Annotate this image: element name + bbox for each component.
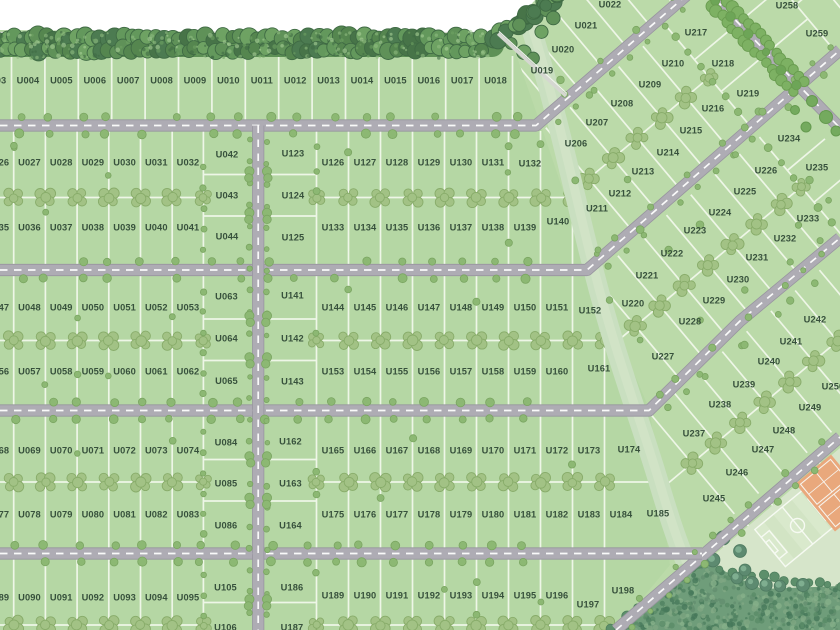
- svg-text:U159: U159: [514, 366, 537, 376]
- svg-text:U214: U214: [657, 147, 680, 157]
- svg-text:U245: U245: [703, 493, 726, 503]
- svg-text:U038: U038: [82, 222, 105, 232]
- svg-text:U132: U132: [519, 158, 542, 168]
- svg-text:U127: U127: [354, 157, 377, 167]
- svg-text:U231: U231: [746, 252, 769, 262]
- svg-text:U089: U089: [0, 592, 9, 602]
- svg-text:U138: U138: [482, 222, 505, 232]
- svg-text:U135: U135: [386, 222, 409, 232]
- svg-text:U217: U217: [685, 27, 708, 37]
- svg-text:U178: U178: [418, 509, 441, 519]
- svg-text:U006: U006: [83, 75, 106, 85]
- svg-text:U126: U126: [322, 157, 345, 167]
- svg-text:U140: U140: [547, 216, 570, 226]
- svg-text:U250: U250: [822, 381, 840, 391]
- svg-text:U213: U213: [632, 166, 655, 176]
- svg-text:U016: U016: [417, 75, 440, 85]
- svg-text:U216: U216: [702, 103, 725, 113]
- svg-text:U240: U240: [758, 356, 781, 366]
- svg-text:U242: U242: [804, 314, 827, 324]
- svg-text:U070: U070: [50, 445, 73, 455]
- svg-text:U197: U197: [577, 599, 600, 609]
- svg-text:U238: U238: [709, 399, 732, 409]
- svg-text:U072: U072: [113, 445, 136, 455]
- svg-text:U004: U004: [17, 75, 40, 85]
- svg-text:U228: U228: [679, 316, 702, 326]
- svg-text:U021: U021: [575, 20, 598, 30]
- svg-text:U069: U069: [18, 445, 41, 455]
- svg-text:U091: U091: [50, 592, 73, 602]
- svg-text:U147: U147: [418, 302, 441, 312]
- svg-text:U166: U166: [354, 445, 377, 455]
- svg-text:U187: U187: [281, 622, 304, 630]
- svg-text:U192: U192: [418, 590, 441, 600]
- svg-text:U011: U011: [251, 75, 273, 85]
- svg-text:U164: U164: [279, 520, 302, 530]
- svg-text:U227: U227: [652, 351, 675, 361]
- svg-text:U162: U162: [279, 436, 302, 446]
- svg-text:U082: U082: [145, 509, 168, 519]
- svg-text:U196: U196: [546, 590, 569, 600]
- svg-text:U014: U014: [351, 75, 374, 85]
- svg-text:U210: U210: [662, 58, 685, 68]
- svg-text:U134: U134: [354, 222, 377, 232]
- svg-text:U022: U022: [599, 0, 622, 9]
- svg-text:U173: U173: [578, 445, 601, 455]
- svg-text:U058: U058: [50, 366, 73, 376]
- svg-text:U151: U151: [546, 302, 569, 312]
- svg-text:U009: U009: [184, 75, 207, 85]
- svg-text:U241: U241: [780, 336, 803, 346]
- svg-text:U218: U218: [712, 58, 735, 68]
- svg-text:U074: U074: [177, 445, 200, 455]
- svg-text:U093: U093: [113, 592, 136, 602]
- svg-text:U081: U081: [113, 509, 136, 519]
- svg-text:U219: U219: [737, 88, 760, 98]
- svg-text:U226: U226: [755, 165, 778, 175]
- svg-text:U051: U051: [113, 302, 136, 312]
- svg-text:U049: U049: [50, 302, 73, 312]
- svg-text:U041: U041: [177, 222, 200, 232]
- svg-text:U224: U224: [709, 207, 732, 217]
- svg-text:U148: U148: [450, 302, 473, 312]
- svg-text:U084: U084: [215, 437, 238, 447]
- svg-text:U008: U008: [150, 75, 173, 85]
- svg-text:U036: U036: [18, 222, 41, 232]
- svg-text:U141: U141: [281, 290, 304, 300]
- svg-text:U052: U052: [145, 302, 168, 312]
- svg-text:U230: U230: [727, 274, 750, 284]
- svg-text:U073: U073: [145, 445, 168, 455]
- svg-text:U105: U105: [214, 582, 237, 592]
- svg-text:U040: U040: [145, 222, 168, 232]
- svg-text:U239: U239: [733, 379, 756, 389]
- svg-text:U165: U165: [322, 445, 345, 455]
- svg-text:U249: U249: [799, 402, 822, 412]
- svg-text:U128: U128: [386, 157, 409, 167]
- svg-text:U065: U065: [215, 376, 238, 386]
- svg-text:U248: U248: [773, 425, 796, 435]
- svg-text:U086: U086: [215, 520, 238, 530]
- svg-text:U153: U153: [322, 366, 345, 376]
- svg-text:U029: U029: [82, 157, 105, 167]
- svg-text:U043: U043: [216, 190, 239, 200]
- svg-text:U259: U259: [806, 28, 829, 38]
- svg-text:U131: U131: [482, 157, 505, 167]
- svg-text:U189: U189: [322, 590, 345, 600]
- svg-text:U092: U092: [82, 592, 105, 602]
- svg-text:U182: U182: [546, 509, 569, 519]
- svg-text:U161: U161: [588, 363, 611, 373]
- svg-text:U168: U168: [418, 445, 441, 455]
- svg-text:U039: U039: [113, 222, 136, 232]
- svg-text:U207: U207: [586, 117, 609, 127]
- svg-text:U020: U020: [552, 44, 575, 54]
- svg-text:U170: U170: [482, 445, 505, 455]
- svg-text:U195: U195: [514, 590, 537, 600]
- svg-text:U208: U208: [611, 98, 634, 108]
- svg-text:U059: U059: [82, 366, 105, 376]
- svg-text:U167: U167: [386, 445, 409, 455]
- svg-text:U234: U234: [778, 133, 801, 143]
- svg-text:U019: U019: [531, 65, 554, 75]
- svg-text:U106: U106: [214, 622, 237, 630]
- svg-text:U229: U229: [703, 295, 726, 305]
- svg-text:U246: U246: [726, 467, 749, 477]
- svg-text:U035: U035: [0, 222, 9, 232]
- svg-text:U125: U125: [282, 232, 305, 242]
- svg-text:U031: U031: [145, 157, 168, 167]
- svg-text:U146: U146: [386, 302, 409, 312]
- svg-text:U215: U215: [680, 125, 703, 135]
- svg-text:U184: U184: [610, 509, 633, 519]
- svg-text:U063: U063: [215, 291, 238, 301]
- svg-text:U194: U194: [482, 590, 505, 600]
- svg-text:U232: U232: [774, 233, 797, 243]
- svg-text:U169: U169: [450, 445, 473, 455]
- svg-text:U158: U158: [482, 366, 505, 376]
- svg-text:U211: U211: [586, 203, 608, 213]
- svg-text:U222: U222: [661, 248, 684, 258]
- svg-text:U062: U062: [177, 366, 200, 376]
- svg-text:U172: U172: [546, 445, 569, 455]
- svg-text:U145: U145: [354, 302, 377, 312]
- svg-text:U012: U012: [284, 75, 307, 85]
- svg-text:U064: U064: [215, 333, 238, 343]
- svg-text:U003: U003: [0, 75, 6, 85]
- svg-text:U042: U042: [216, 149, 239, 159]
- svg-text:U095: U095: [177, 592, 200, 602]
- svg-text:U083: U083: [177, 509, 200, 519]
- svg-text:U015: U015: [384, 75, 407, 85]
- svg-text:U133: U133: [322, 222, 345, 232]
- svg-text:U007: U007: [117, 75, 140, 85]
- svg-text:U094: U094: [145, 592, 168, 602]
- svg-text:U157: U157: [450, 366, 473, 376]
- svg-text:U152: U152: [579, 305, 602, 315]
- svg-text:U085: U085: [215, 478, 238, 488]
- svg-text:U179: U179: [450, 509, 473, 519]
- svg-text:U080: U080: [82, 509, 105, 519]
- svg-text:U013: U013: [317, 75, 340, 85]
- svg-text:U163: U163: [279, 478, 302, 488]
- svg-text:U028: U028: [50, 157, 73, 167]
- svg-text:U056: U056: [0, 366, 9, 376]
- svg-text:U139: U139: [514, 222, 537, 232]
- svg-text:U143: U143: [281, 376, 304, 386]
- svg-text:U047: U047: [0, 302, 9, 312]
- svg-text:U044: U044: [216, 231, 239, 241]
- svg-text:U079: U079: [50, 509, 73, 519]
- svg-text:U053: U053: [177, 302, 200, 312]
- svg-text:U142: U142: [281, 333, 304, 343]
- svg-text:U048: U048: [18, 302, 41, 312]
- svg-text:U233: U233: [797, 213, 820, 223]
- svg-text:U191: U191: [386, 590, 409, 600]
- svg-text:U060: U060: [113, 366, 136, 376]
- svg-text:U175: U175: [322, 509, 345, 519]
- svg-text:U071: U071: [82, 445, 105, 455]
- svg-text:U050: U050: [82, 302, 105, 312]
- svg-text:U149: U149: [482, 302, 505, 312]
- svg-text:U123: U123: [282, 148, 305, 158]
- svg-text:U225: U225: [734, 186, 757, 196]
- svg-text:U154: U154: [354, 366, 377, 376]
- svg-text:U190: U190: [354, 590, 377, 600]
- svg-text:U030: U030: [113, 157, 136, 167]
- svg-text:U177: U177: [386, 509, 409, 519]
- svg-text:U124: U124: [282, 190, 305, 200]
- svg-text:U077: U077: [0, 509, 9, 519]
- svg-text:U037: U037: [50, 222, 73, 232]
- svg-text:U247: U247: [752, 444, 775, 454]
- svg-text:U185: U185: [647, 508, 670, 518]
- svg-text:U235: U235: [806, 162, 829, 172]
- svg-text:U061: U061: [145, 366, 168, 376]
- svg-text:U174: U174: [618, 444, 641, 454]
- svg-text:U181: U181: [514, 509, 537, 519]
- svg-text:U212: U212: [609, 188, 632, 198]
- svg-text:U005: U005: [50, 75, 73, 85]
- svg-text:U078: U078: [18, 509, 41, 519]
- svg-text:U068: U068: [0, 445, 9, 455]
- svg-text:U186: U186: [281, 582, 304, 592]
- svg-text:U198: U198: [612, 585, 635, 595]
- svg-text:U010: U010: [217, 75, 240, 85]
- svg-text:U129: U129: [418, 157, 441, 167]
- svg-text:U258: U258: [776, 0, 799, 10]
- svg-text:U160: U160: [546, 366, 569, 376]
- svg-text:U136: U136: [418, 222, 441, 232]
- svg-text:U057: U057: [18, 366, 41, 376]
- svg-text:U150: U150: [514, 302, 537, 312]
- svg-text:U026: U026: [0, 157, 9, 167]
- svg-text:U209: U209: [639, 79, 662, 89]
- svg-text:U223: U223: [684, 225, 707, 235]
- svg-text:U155: U155: [386, 366, 409, 376]
- svg-text:U221: U221: [636, 270, 659, 280]
- svg-text:U237: U237: [683, 428, 706, 438]
- svg-text:U176: U176: [354, 509, 377, 519]
- svg-text:U171: U171: [514, 445, 537, 455]
- svg-text:U220: U220: [622, 298, 645, 308]
- svg-text:U183: U183: [578, 509, 601, 519]
- svg-text:U180: U180: [482, 509, 505, 519]
- svg-text:U144: U144: [322, 302, 345, 312]
- svg-text:U090: U090: [18, 592, 41, 602]
- svg-text:U156: U156: [418, 366, 441, 376]
- svg-text:U032: U032: [177, 157, 200, 167]
- svg-text:U018: U018: [484, 75, 507, 85]
- svg-text:U130: U130: [450, 157, 473, 167]
- svg-text:U017: U017: [451, 75, 474, 85]
- svg-text:U027: U027: [18, 157, 41, 167]
- svg-text:U206: U206: [565, 138, 588, 148]
- svg-text:U137: U137: [450, 222, 473, 232]
- svg-text:U193: U193: [450, 590, 473, 600]
